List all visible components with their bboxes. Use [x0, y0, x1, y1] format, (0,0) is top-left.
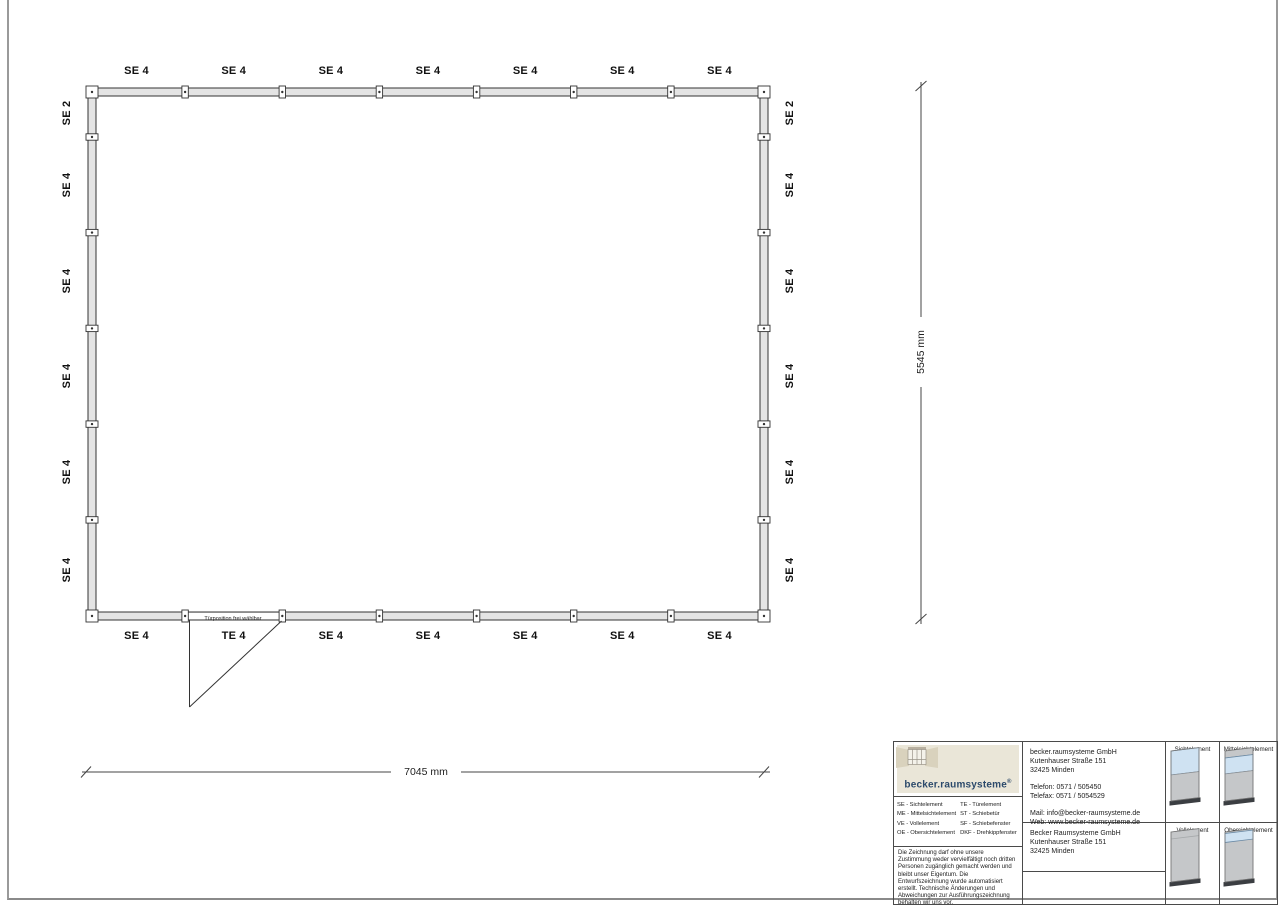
wall-element-label: SE 4 [690, 629, 750, 643]
vollelement-thumbnail [1166, 823, 1206, 889]
contact-street: Kutenhauser Straße 151 [1030, 757, 1158, 766]
wall-element-label: SE 4 [301, 64, 361, 78]
contact-fax: Telefax: 0571 / 5054529 [1030, 792, 1158, 801]
contact-cell: becker.raumsysteme GmbH Kutenhauser Stra… [1023, 742, 1165, 823]
wall-element-label: SE 2 [60, 83, 74, 143]
legend-entry: DKF - Drehkippfenster [960, 829, 1017, 838]
wall-element-label: SE 4 [783, 251, 797, 311]
room-walls [88, 88, 768, 620]
wall-element-label: SE 4 [592, 629, 652, 643]
vollelement-cell: Vollelement [1166, 823, 1219, 904]
owner-city: 32425 Minden [1030, 847, 1158, 856]
wall-element-label: SE 4 [398, 64, 458, 78]
wall-element-label: SE 4 [495, 629, 555, 643]
wall-element-label: SE 4 [690, 64, 750, 78]
titleblock-col-elements-1: Sichtelement Vollelement [1166, 742, 1220, 904]
wall-element-label: SE 4 [398, 629, 458, 643]
obersichtelement-cell: Obersichtelement [1220, 823, 1277, 904]
wall-element-label: SE 2 [783, 83, 797, 143]
wall-element-label: SE 4 [60, 540, 74, 600]
sichtelement-cell: Sichtelement [1166, 742, 1219, 823]
titleblock-col-address: becker.raumsysteme GmbH Kutenhauser Stra… [1023, 742, 1166, 904]
mittelsichtelement-thumbnail [1220, 742, 1260, 808]
mittelsichtelement-cell: Mittelsichtelement [1220, 742, 1277, 823]
owner-company: Becker Raumsysteme GmbH [1030, 829, 1158, 838]
legend-entry: VE - Vollelement [897, 820, 956, 829]
wall-element-label: SE 4 [60, 251, 74, 311]
sichtelement-thumbnail [1166, 742, 1206, 808]
empty-cell [1023, 872, 1165, 904]
titleblock-col-elements-2: Mittelsichtelement Obersichtelement [1220, 742, 1277, 904]
contact-mail: Mail: info@becker-raumsysteme.de [1030, 809, 1158, 818]
legend-column-1: SE - Sichtelement ME - Mittelsichtelemen… [897, 801, 956, 842]
wall-element-label: SE 4 [107, 64, 167, 78]
drawing-sheet: SE 4 SE 4 SE 4 SE 4 SE 4 SE 4 SE 4 SE 4 … [0, 0, 1280, 905]
wall-element-label: SE 4 [592, 64, 652, 78]
company-logo: becker.raumsysteme® [897, 745, 1019, 793]
logo-cell: becker.raumsysteme® [894, 742, 1022, 797]
legend-entry: SF - Schiebefenster [960, 820, 1017, 829]
wall-element-label: SE 4 [301, 629, 361, 643]
door-element-label: TE 4 [204, 629, 264, 643]
wall-element-label: SE 4 [60, 442, 74, 502]
titleblock-col-logo: becker.raumsysteme® SE - Sichtelement ME… [894, 742, 1023, 904]
owner-street: Kutenhauser Straße 151 [1030, 838, 1158, 847]
height-dimension: 5545 mm [914, 317, 928, 387]
title-block: becker.raumsysteme® SE - Sichtelement ME… [893, 741, 1278, 905]
disclaimer-text: Die Zeichnung darf ohne unsere Zustimmun… [898, 850, 1018, 905]
wall-element-label: SE 4 [495, 64, 555, 78]
door-position-note: Türposition frei wählbar [197, 616, 269, 623]
wall-element-label: SE 4 [783, 442, 797, 502]
wall-element-label: SE 4 [60, 155, 74, 215]
owner-cell: Becker Raumsysteme GmbH Kutenhauser Stra… [1023, 823, 1165, 872]
legend-cell: SE - Sichtelement ME - Mittelsichtelemen… [894, 797, 1022, 847]
legend-entry: SE - Sichtelement [897, 801, 956, 810]
contact-city: 32425 Minden [1030, 766, 1158, 775]
legend-entry: OE - Obersichtelement [897, 829, 956, 838]
wall-element-label: SE 4 [107, 629, 167, 643]
legend-entry: TE - Türelement [960, 801, 1017, 810]
logo-wordmark: becker.raumsysteme® [904, 779, 1011, 790]
legend-entry: ST - Schiebetür [960, 810, 1017, 819]
contact-company: becker.raumsysteme GmbH [1030, 748, 1158, 757]
contact-phone: Telefon: 0571 / 505450 [1030, 783, 1158, 792]
wall-element-label: SE 4 [783, 155, 797, 215]
wall-element-label: SE 4 [783, 346, 797, 406]
disclaimer-cell: Die Zeichnung darf ohne unsere Zustimmun… [894, 847, 1022, 904]
obersichtelement-thumbnail [1220, 823, 1260, 889]
logo-cabin-icon [894, 742, 940, 769]
width-dimension: 7045 mm [391, 765, 461, 779]
legend-entry: ME - Mittelsichtelement [897, 810, 956, 819]
wall-element-label: SE 4 [60, 346, 74, 406]
wall-element-label: SE 4 [204, 64, 264, 78]
legend-column-2: TE - Türelement ST - Schiebetür SF - Sch… [960, 801, 1017, 842]
wall-element-label: SE 4 [783, 540, 797, 600]
